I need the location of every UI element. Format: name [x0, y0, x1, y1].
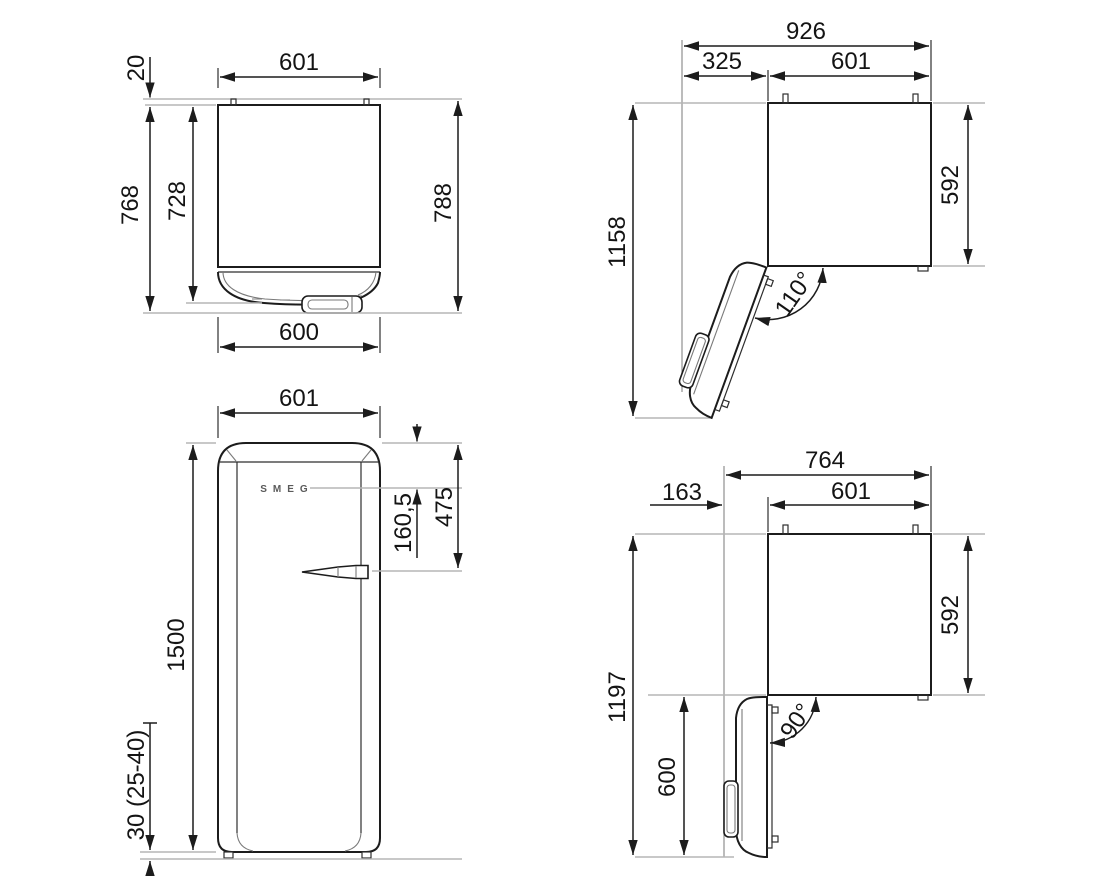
dimension-drawing: 601 20 768 728 788 600 1 [0, 0, 1111, 893]
view-top-door-open-110: 110° 926 325 601 1158 592 [604, 18, 985, 422]
fridge-front-outline [218, 443, 380, 852]
dim-label-width-total: 764 [805, 447, 845, 474]
cabinet-top-view [768, 534, 931, 695]
dim-label-side-clearance: 163 [662, 479, 702, 506]
hinge-pin [783, 94, 788, 103]
dim-label-depth-total: 1197 [604, 671, 631, 723]
brand-logo: SMEG [260, 484, 313, 495]
hinge-pin [913, 94, 918, 103]
adjustable-foot [224, 852, 233, 858]
dim-label-depth-total: 788 [430, 183, 457, 223]
door-handle-top-view [302, 296, 362, 313]
dim-label-depth-total: 1158 [604, 216, 631, 268]
adjustable-foot [362, 852, 371, 858]
dim-label-height: 1500 [163, 618, 190, 671]
dim-label-depth-body: 592 [937, 595, 964, 635]
dim-label-width-body: 601 [831, 478, 871, 505]
dim-label-door-angle: 110° [770, 267, 820, 322]
view-top-door-open-90: 90° 764 163 601 1197 592 600 [604, 447, 985, 857]
dim-label-feet-clearance: 30 (25-40) [123, 730, 150, 841]
hinge-pin [783, 525, 788, 534]
dim-label-width-total: 926 [786, 18, 826, 45]
dim-label-depth-no-handle: 728 [164, 181, 191, 221]
dim-label-door-angle: 90° [775, 699, 818, 744]
dim-label-wall-gap: 20 [123, 55, 150, 82]
dim-label-width-door: 600 [279, 319, 319, 346]
dim-label-width-body: 601 [831, 48, 871, 75]
dim-label-width-body: 601 [279, 49, 319, 76]
door-open-110 [671, 253, 776, 422]
dim-label-door-depth: 600 [654, 757, 681, 797]
dim-label-depth-body: 768 [117, 185, 144, 225]
view-front: SMEG 601 160,5 475 1500 30 (25-40) [123, 385, 462, 872]
door-open-90 [724, 697, 778, 857]
dim-label-handle-offset: 475 [431, 487, 458, 527]
dim-label-logo-offset: 160,5 [390, 493, 417, 553]
dimension-drawing-page: 601 20 768 728 788 600 1 [0, 0, 1111, 893]
dim-label-width: 601 [279, 385, 319, 412]
dim-label-depth-body: 592 [937, 165, 964, 205]
dim-label-side-clearance: 325 [702, 48, 742, 75]
cabinet-top-view [768, 103, 931, 266]
cabinet-top-view [218, 105, 380, 267]
view-top-door-closed: 601 20 768 728 788 600 [117, 49, 462, 353]
hinge-pin [913, 525, 918, 534]
